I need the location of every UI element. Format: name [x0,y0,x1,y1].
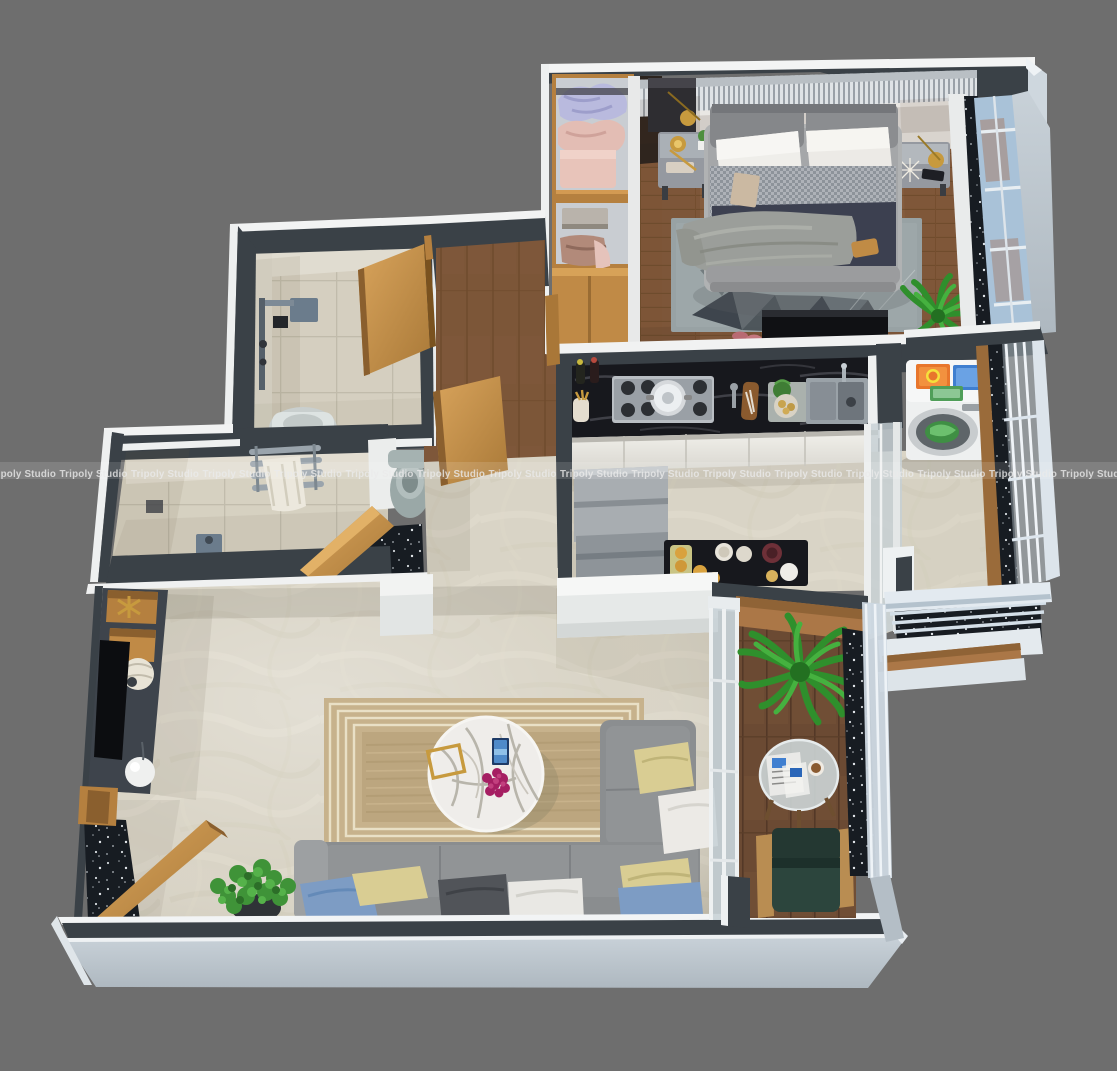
svg-text:Tripoly Studio: Tripoly Studio [989,469,1057,480]
svg-text:Tripoly Studio: Tripoly Studio [203,469,271,480]
svg-text:Tripoly Studio: Tripoly Studio [703,469,771,480]
svg-text:Tripoly Studio: Tripoly Studio [846,469,914,480]
svg-text:Tripoly Studio: Tripoly Studio [918,469,986,480]
svg-text:Tripoly Studio: Tripoly Studio [346,469,414,480]
svg-text:Tripoly Studio: Tripoly Studio [274,469,342,480]
svg-text:Tripoly Studio: Tripoly Studio [60,469,128,480]
svg-text:Tripoly Studio: Tripoly Studio [632,469,700,480]
svg-text:Tripoly Studio: Tripoly Studio [560,469,628,480]
svg-text:Tripoly Studio: Tripoly Studio [0,469,56,480]
svg-text:Tripoly Studio: Tripoly Studio [417,469,485,480]
svg-text:Tripoly Studio: Tripoly Studio [1061,469,1117,480]
svg-text:Tripoly Studio: Tripoly Studio [489,469,557,480]
svg-text:Tripoly Studio: Tripoly Studio [131,469,199,480]
svg-text:Tripoly Studio: Tripoly Studio [775,469,843,480]
